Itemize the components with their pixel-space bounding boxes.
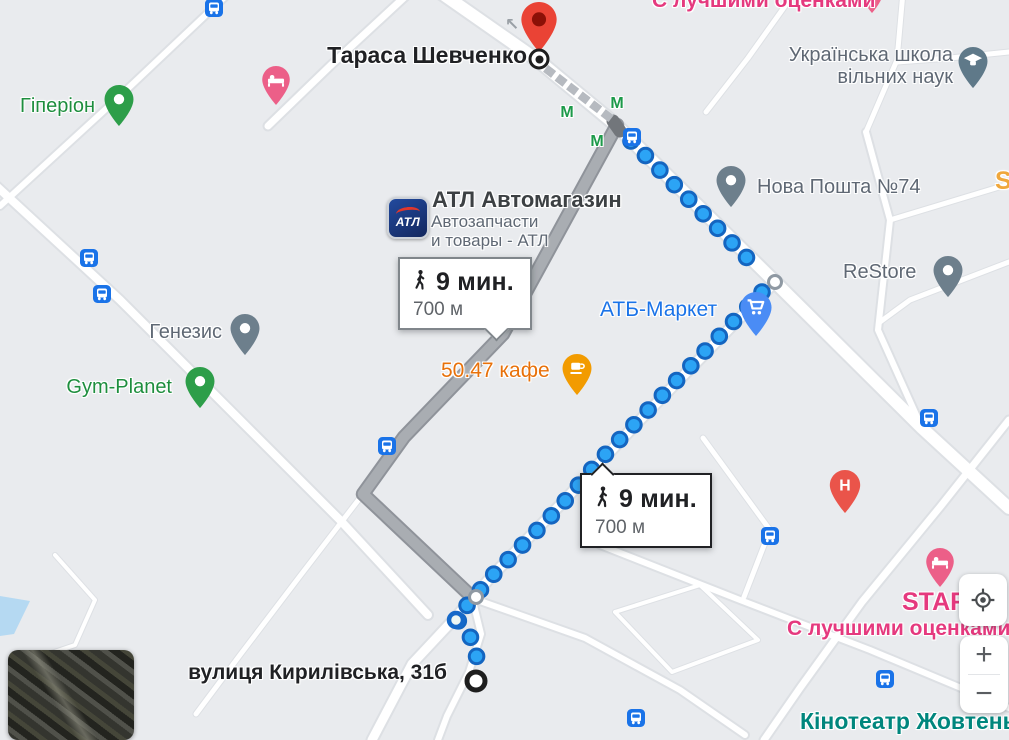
bus-stop-icon[interactable] xyxy=(627,709,645,727)
bus-stop-icon[interactable] xyxy=(761,527,779,545)
route-distance: 700 м xyxy=(413,299,518,321)
origin-marker[interactable] xyxy=(465,670,488,693)
label-line: Автозапчасти xyxy=(431,212,549,231)
label-line: ReStore xyxy=(843,261,916,283)
hotel-star-pin[interactable] xyxy=(926,548,954,592)
label-line: 50.47 кафе xyxy=(441,359,550,383)
genezis-pin[interactable] xyxy=(230,314,260,360)
restore-pin[interactable] xyxy=(933,256,963,302)
label-s-partial[interactable]: S xyxy=(995,167,1009,195)
label-line: С лучшими оценками xyxy=(652,0,875,13)
route-time: 9 мин. xyxy=(619,485,697,514)
street-view-thumbnail[interactable] xyxy=(8,650,134,740)
school-pin[interactable] xyxy=(958,47,988,93)
label-genezis[interactable]: Генезис xyxy=(149,321,222,343)
marker-layer: HМММ↖Тараса ШевченкоУкраїнська школавіль… xyxy=(0,0,1009,740)
bed-pin-icon xyxy=(262,66,290,105)
label-kyrylivska[interactable]: вулиця Кирилівська, 31б xyxy=(188,661,447,685)
dot-pin-icon xyxy=(230,314,260,355)
cafe-pin[interactable] xyxy=(562,354,592,400)
label-atl-title[interactable]: АТЛ Автомагазин xyxy=(432,188,622,213)
label-hyperion[interactable]: Гіперіон xyxy=(20,95,95,117)
label-cafe-5047[interactable]: 50.47 кафе xyxy=(441,359,550,383)
oneway-arrow-icon: ↖ xyxy=(505,15,519,35)
label-line: Тараса Шевченко xyxy=(327,43,527,69)
label-nova-poshta[interactable]: Нова Пошта №74 xyxy=(757,176,921,198)
route-distance: 700 м xyxy=(595,517,698,539)
bus-stop-icon[interactable] xyxy=(378,437,396,455)
dot-pin-icon xyxy=(933,256,963,297)
label-atl-sub[interactable]: Автозапчастии товары - АТЛ xyxy=(431,212,549,250)
dot-pin-icon xyxy=(716,166,746,207)
nova-poshta-pin[interactable] xyxy=(716,166,746,212)
label-line: АТБ-Маркет xyxy=(600,298,717,322)
route-tooltip-alternate[interactable]: 9 мин. 700 м xyxy=(398,257,532,330)
hotel-top-left-pin[interactable] xyxy=(262,66,290,110)
bus-stop-icon[interactable] xyxy=(205,0,223,17)
bus-stop-icon[interactable] xyxy=(80,249,98,267)
svg-text:H: H xyxy=(839,477,850,494)
bed-pin-icon xyxy=(926,548,954,587)
walking-person-icon xyxy=(412,265,429,299)
bus-stop-icon[interactable] xyxy=(623,128,641,146)
my-location-button[interactable] xyxy=(959,574,1007,626)
bus-stop-icon[interactable] xyxy=(93,285,111,303)
my-location-icon xyxy=(970,587,996,613)
bus-stop-icon[interactable] xyxy=(876,670,894,688)
label-restore[interactable]: ReStore xyxy=(843,261,916,283)
route-time: 9 мин. xyxy=(436,268,514,297)
grad-pin-icon xyxy=(958,47,988,88)
label-best-rated-top[interactable]: С лучшими оценками xyxy=(652,0,875,13)
label-line: вільних наук xyxy=(789,66,953,88)
map-canvas[interactable]: HМММ↖Тараса ШевченкоУкраїнська школавіль… xyxy=(0,0,1009,740)
cup-pin-icon xyxy=(562,354,592,395)
bus-stop-icon[interactable] xyxy=(920,409,938,427)
zoom-control: + − xyxy=(960,636,1008,713)
hyperion-pin[interactable] xyxy=(104,85,134,131)
label-school[interactable]: Українська школавільних наук xyxy=(789,44,953,89)
label-line: АТЛ Автомагазин xyxy=(432,188,622,213)
label-taras-shevchenko[interactable]: Тараса Шевченко xyxy=(327,43,527,69)
label-line: Нова Пошта №74 xyxy=(757,176,921,198)
label-line: Гіперіон xyxy=(20,95,95,117)
dot-pin-icon xyxy=(185,367,215,408)
cart-pin-icon xyxy=(740,292,772,336)
metro-icon[interactable]: М xyxy=(610,95,623,113)
H-pin-icon: H xyxy=(830,470,861,513)
gym-planet-pin[interactable] xyxy=(185,367,215,413)
label-line: Генезис xyxy=(149,321,222,343)
hospital-pin[interactable]: H xyxy=(830,470,861,518)
label-line: Gym-Planet xyxy=(66,376,172,398)
atl-store-logo[interactable]: АТЛ xyxy=(387,197,429,239)
dot-pin-icon xyxy=(104,85,134,126)
label-line: Українська школа xyxy=(789,44,953,66)
atb-market-pin[interactable] xyxy=(740,292,772,341)
label-line: S xyxy=(995,167,1009,195)
route-tooltip-selected[interactable]: 9 мин. 700 м xyxy=(580,473,712,548)
metro-icon[interactable]: М xyxy=(560,104,573,122)
label-line: и товары - АТЛ xyxy=(431,231,549,250)
walking-person-icon xyxy=(594,481,612,517)
label-gym-planet[interactable]: Gym-Planet xyxy=(66,376,172,398)
zoom-out-button[interactable]: − xyxy=(960,675,1008,713)
zoom-in-button[interactable]: + xyxy=(960,636,1008,674)
destination-station-marker[interactable] xyxy=(529,49,550,70)
label-line: вулиця Кирилівська, 31б xyxy=(188,661,447,685)
label-atb-market[interactable]: АТБ-Маркет xyxy=(600,298,717,322)
metro-icon[interactable]: М xyxy=(590,133,603,151)
